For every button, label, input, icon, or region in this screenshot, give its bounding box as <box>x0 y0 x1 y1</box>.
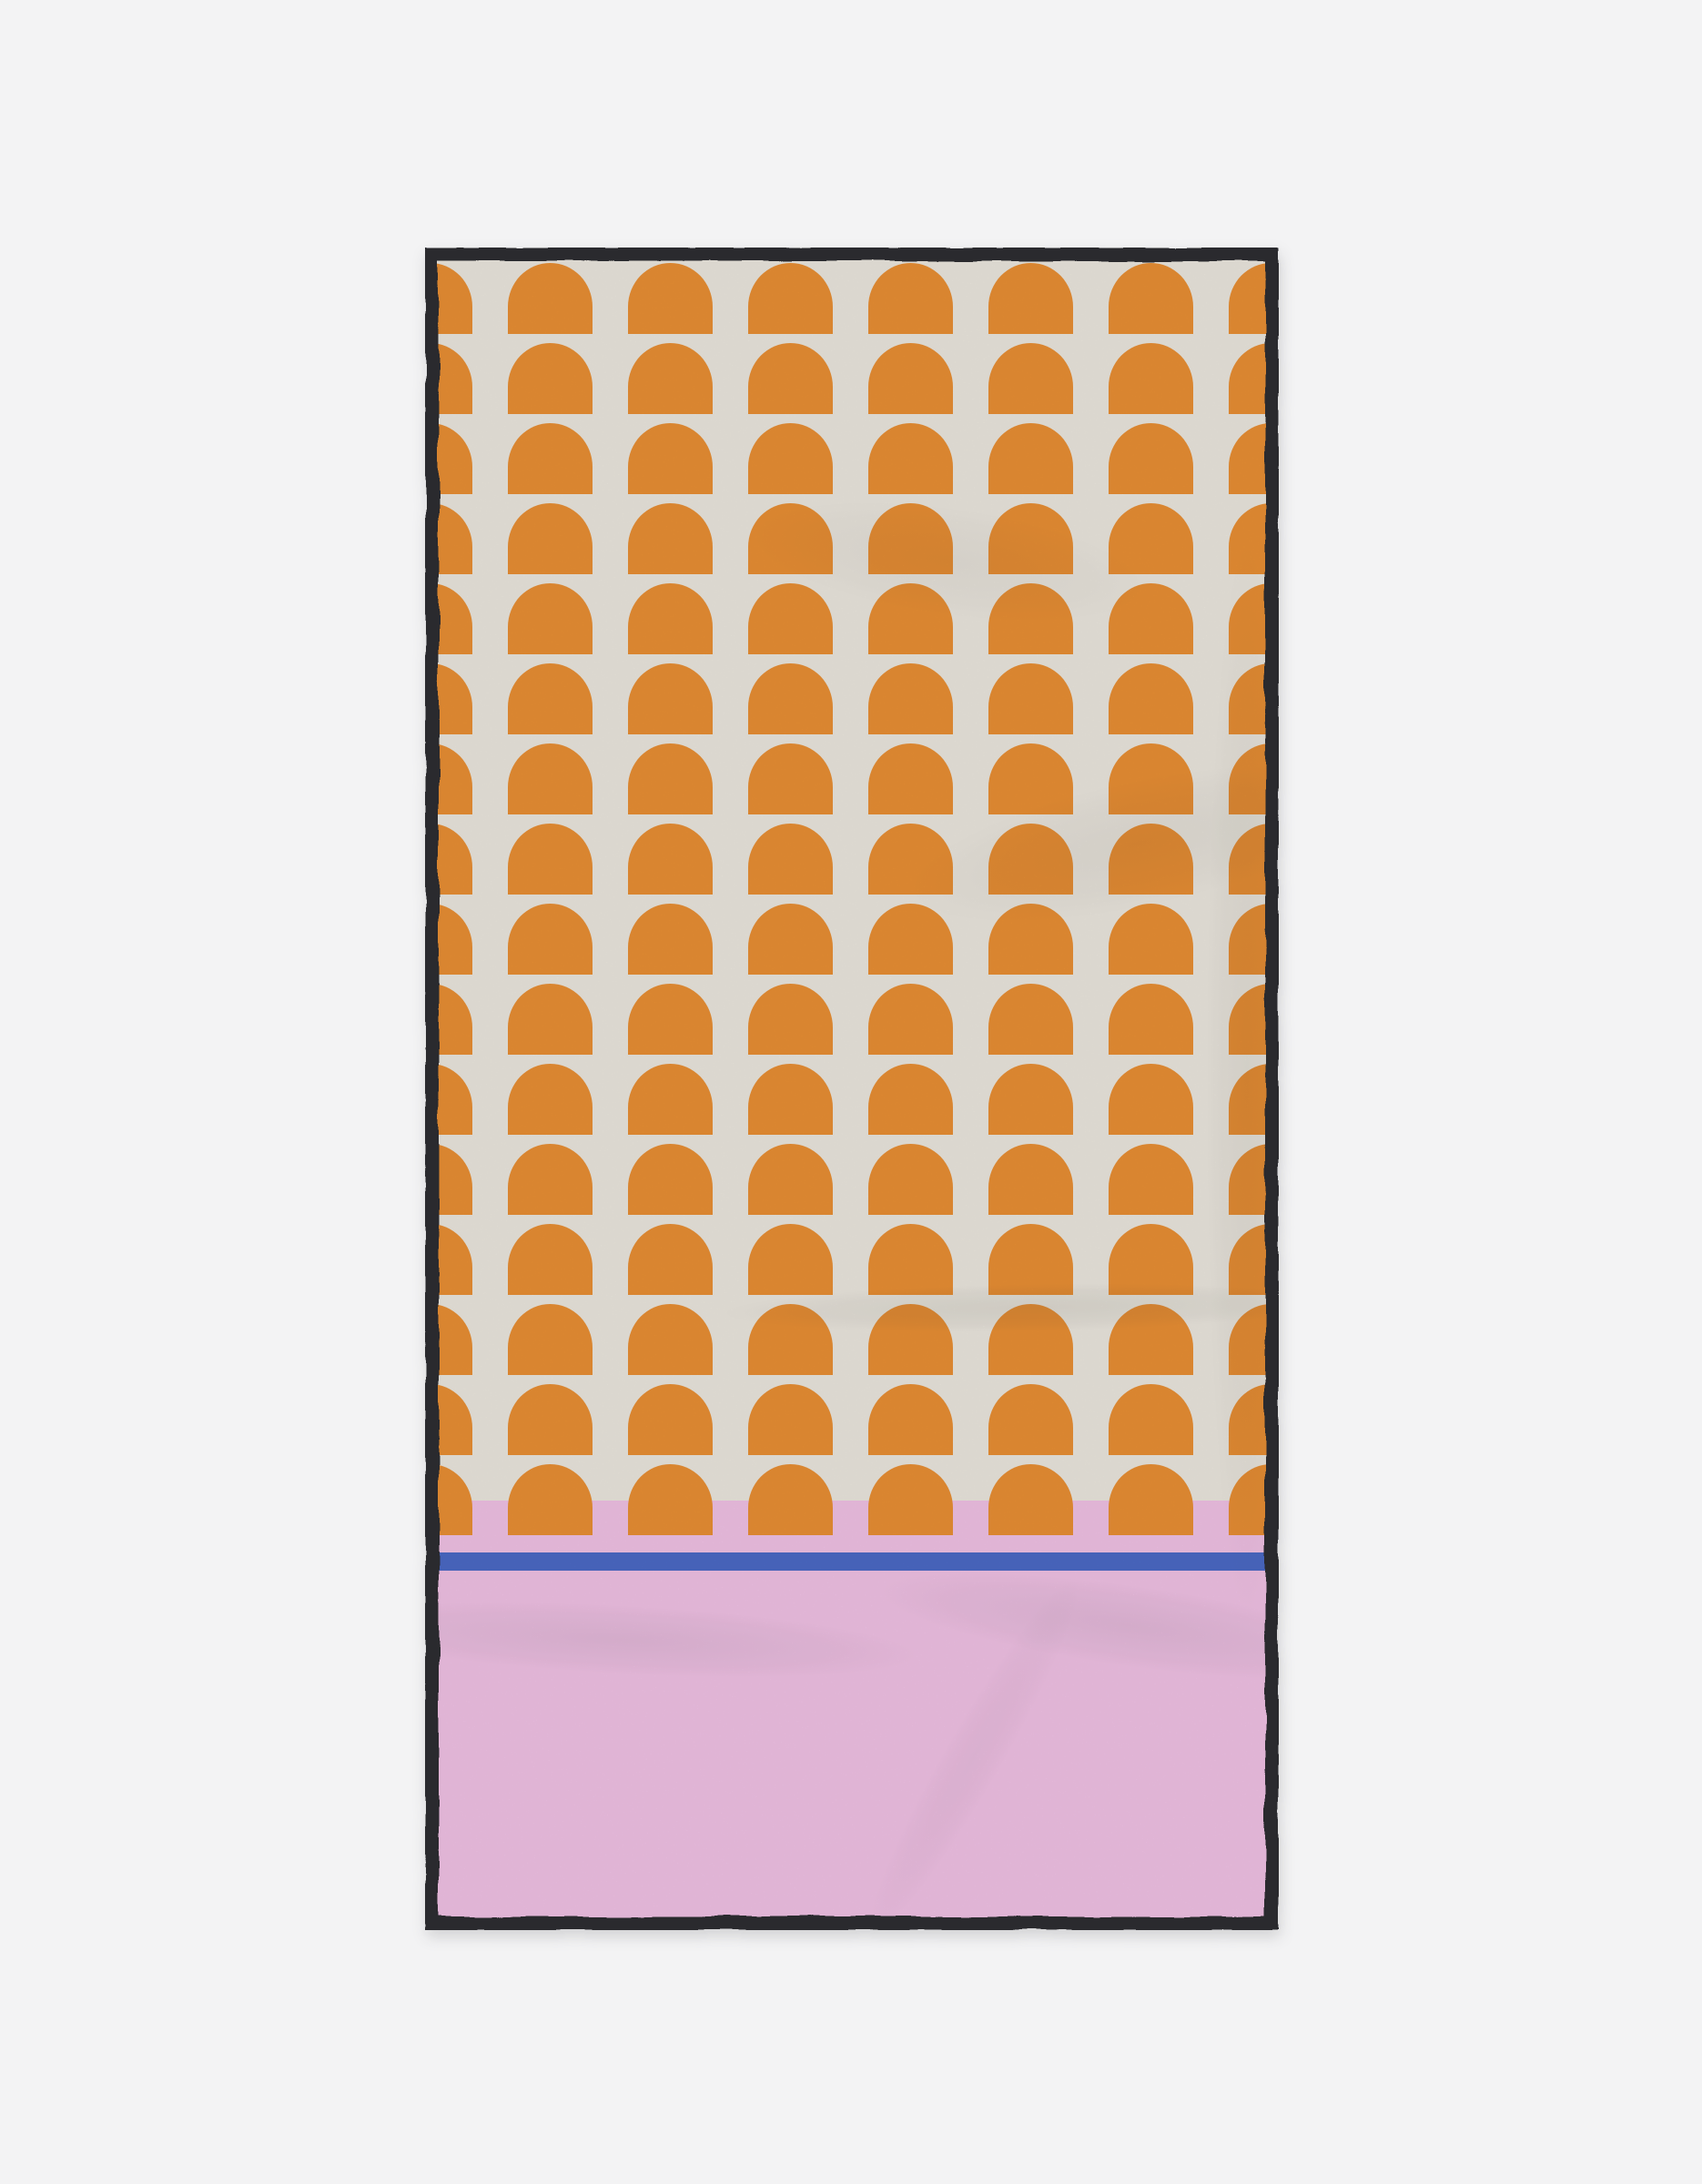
fabric-grain-texture <box>428 250 1276 1927</box>
towel-interior <box>425 250 1279 1930</box>
towel-graphic <box>425 248 1279 1930</box>
tea-towel <box>425 248 1279 1930</box>
studio-background <box>0 0 1702 2184</box>
